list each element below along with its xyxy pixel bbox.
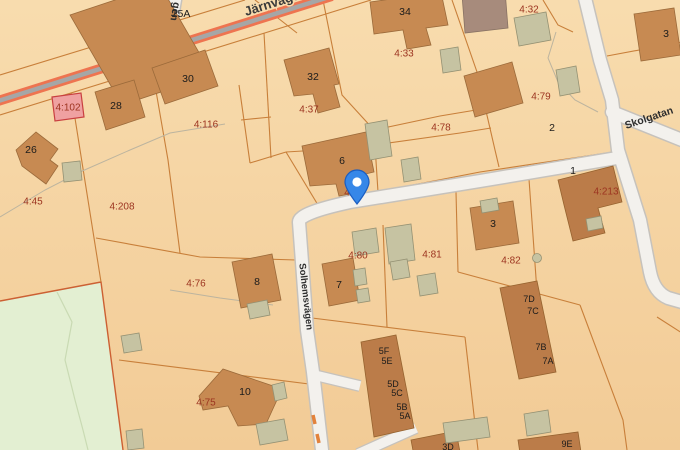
outbuilding bbox=[272, 382, 287, 401]
address-label: 7D bbox=[523, 294, 535, 304]
address-label: 3D bbox=[442, 442, 454, 450]
address-label: 5C bbox=[391, 388, 403, 398]
parcel-label: 4:116 bbox=[194, 120, 219, 131]
outbuilding bbox=[417, 273, 438, 296]
outbuilding bbox=[62, 161, 82, 182]
parcel-label: 4:80 bbox=[348, 251, 368, 262]
address-label: 32 bbox=[307, 71, 319, 83]
outbuilding bbox=[385, 224, 415, 264]
outbuilding bbox=[356, 288, 370, 303]
address-label: 28 bbox=[110, 100, 122, 112]
outbuilding bbox=[586, 216, 603, 231]
parcel-label: 4:37 bbox=[299, 105, 319, 116]
address-label: 1 bbox=[570, 165, 576, 177]
address-label: 3 bbox=[490, 218, 496, 230]
parcel-label: 4:32 bbox=[519, 5, 539, 16]
address-label: 26 bbox=[25, 144, 37, 156]
address-label: 7A bbox=[542, 356, 553, 366]
address-label: 5F bbox=[379, 346, 390, 356]
outbuilding bbox=[126, 429, 144, 450]
outbuilding bbox=[365, 120, 392, 160]
map-container[interactable]: 4:102 4:116 4:45 4:208 4:76 4:75 4:37 4:… bbox=[0, 0, 680, 450]
green-area bbox=[0, 282, 123, 450]
parcel-label: 4:213 bbox=[593, 187, 618, 198]
parcel-label: 4:45 bbox=[23, 197, 43, 208]
outbuilding bbox=[524, 410, 551, 436]
building-brown bbox=[462, 0, 508, 33]
address-label: 5A bbox=[399, 411, 410, 421]
parcel-label: 4:82 bbox=[501, 256, 521, 267]
pin-center-dot bbox=[352, 177, 361, 186]
outbuilding bbox=[514, 12, 551, 46]
outbuilding bbox=[390, 259, 410, 280]
outbuilding bbox=[353, 268, 367, 286]
parcel-label: 4:79 bbox=[531, 92, 551, 103]
parcel-label: 4:81 bbox=[422, 250, 442, 261]
address-label: 3 bbox=[663, 28, 669, 40]
outbuilding bbox=[480, 198, 499, 213]
address-label: 7C bbox=[527, 306, 539, 316]
outbuilding bbox=[121, 333, 142, 353]
address-label: 34 bbox=[399, 6, 411, 18]
parcel-label: 4:208 bbox=[109, 202, 134, 213]
address-label: 2 bbox=[549, 122, 555, 134]
address-label: 10 bbox=[239, 386, 251, 398]
outbuilding bbox=[556, 66, 580, 96]
address-label: 7B bbox=[535, 342, 546, 352]
address-label: 30 bbox=[182, 73, 194, 85]
address-label: 8 bbox=[254, 276, 260, 288]
building-3-top bbox=[634, 8, 680, 61]
outbuilding bbox=[401, 157, 421, 182]
outbuilding bbox=[256, 419, 288, 445]
parcel-label: 4:75 bbox=[196, 398, 216, 409]
parcel-label: 4:33 bbox=[394, 49, 414, 60]
address-label: 6 bbox=[339, 155, 345, 167]
map-canvas[interactable]: 4:102 4:116 4:45 4:208 4:76 4:75 4:37 4:… bbox=[0, 0, 680, 450]
address-label: 7 bbox=[336, 279, 342, 291]
parcel-label: 4:102 bbox=[55, 103, 80, 114]
parcel-label: 4:76 bbox=[186, 279, 206, 290]
address-label: 5E bbox=[381, 356, 392, 366]
outbuilding bbox=[440, 47, 461, 73]
round-structure bbox=[533, 254, 542, 263]
parcel-label: 4:78 bbox=[431, 123, 451, 134]
address-label: 9E bbox=[561, 439, 572, 449]
